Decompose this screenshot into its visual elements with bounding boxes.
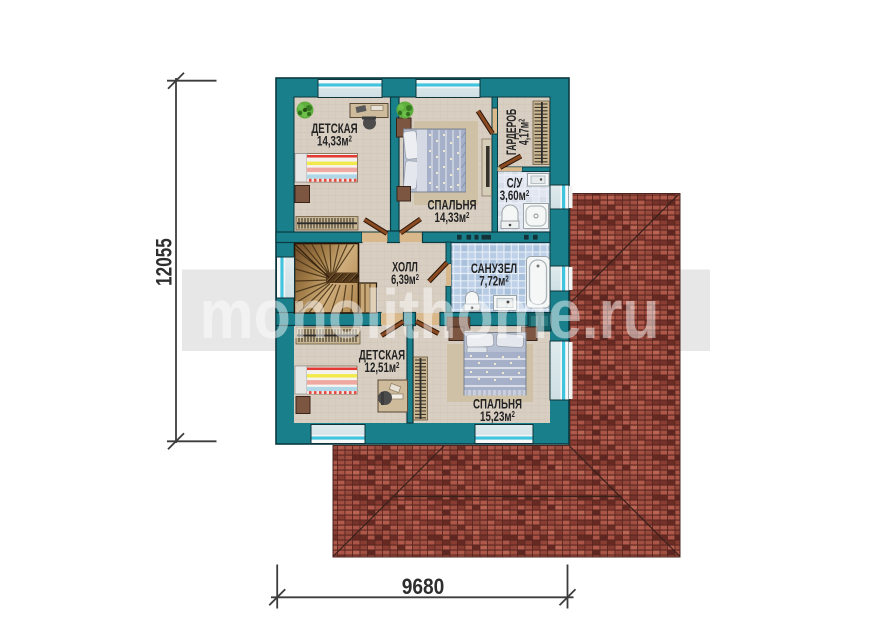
svg-text:4,17м2: 4,17м2 [517, 119, 532, 145]
svg-text:monolithome.ru: monolithome.ru [199, 275, 659, 353]
svg-text:14,33м2: 14,33м2 [317, 133, 352, 148]
svg-text:9680: 9680 [402, 575, 445, 600]
svg-text:15,23м2: 15,23м2 [480, 409, 515, 424]
svg-text:12,51м2: 12,51м2 [365, 360, 400, 375]
svg-text:3,60м2: 3,60м2 [500, 188, 529, 203]
svg-text:14,33м2: 14,33м2 [435, 210, 470, 225]
svg-text:12055: 12055 [153, 238, 178, 286]
